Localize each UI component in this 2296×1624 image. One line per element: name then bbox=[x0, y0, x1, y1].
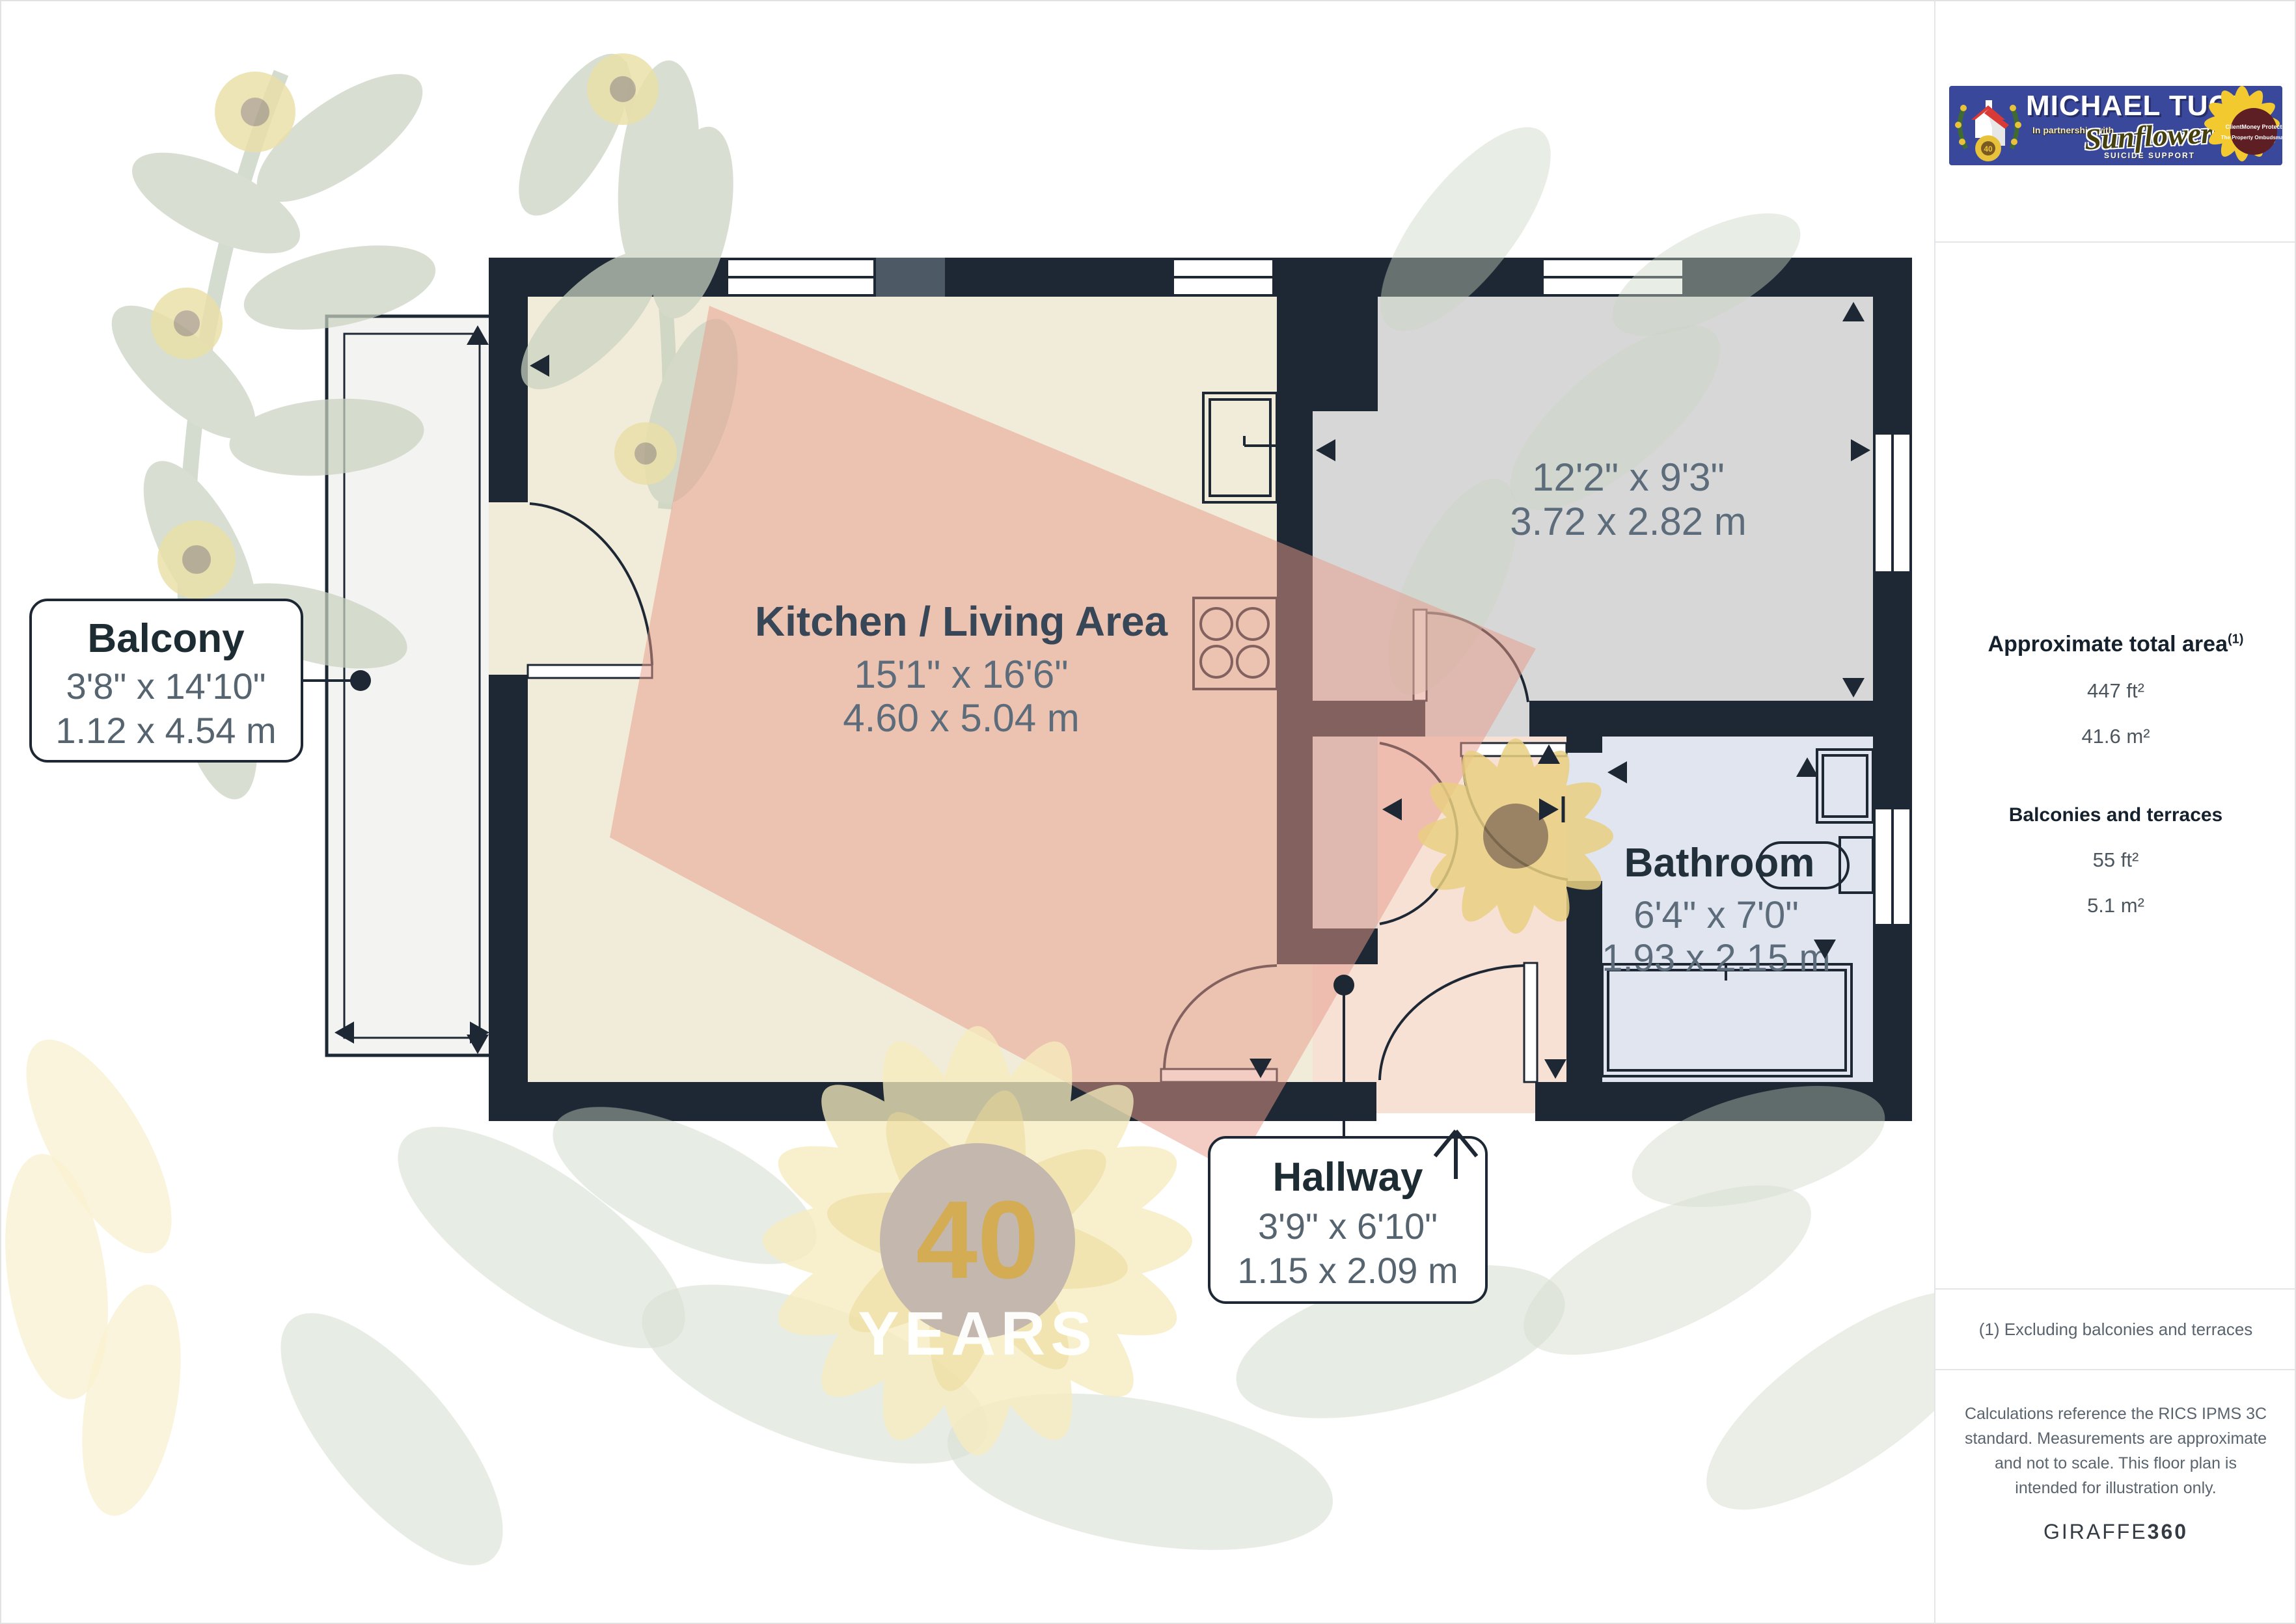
bathroom-dims-metric: 1.93 x 2.15 m bbox=[1602, 937, 1830, 979]
kitchen-dims-metric: 4.60 x 5.04 m bbox=[843, 696, 1080, 740]
bathroom-label: Bathroom bbox=[1624, 841, 1815, 886]
total-area-title: Approximate total area(1) bbox=[1935, 632, 2296, 657]
bedroom-dims-imperial: 12'2" x 9'3" bbox=[1532, 455, 1725, 499]
hallway-dims-metric: 1.15 x 2.09 m bbox=[1237, 1250, 1458, 1291]
agency-logo: 40 MICHAEL TUCK In partnership with Sunf… bbox=[1949, 86, 2282, 165]
watermark-years: YEARS bbox=[858, 1299, 1097, 1368]
balconies-m: 5.1 m² bbox=[1935, 894, 2296, 917]
footnote-marker: (1) bbox=[2228, 632, 2243, 647]
balcony-dims-imperial: 3'8" x 14'10" bbox=[66, 666, 266, 707]
balcony-label: Balcony bbox=[87, 616, 245, 661]
property-ombudsman-badge: The Property Ombudsman bbox=[2221, 135, 2282, 141]
balcony-leader-dot bbox=[350, 670, 371, 691]
logo-section: 40 MICHAEL TUCK In partnership with Sunf… bbox=[1935, 1, 2296, 243]
footnote-text: (1) Excluding balconies and terraces bbox=[1979, 1319, 2253, 1340]
client-money-protect-badge: ClientMoney Protect bbox=[2225, 124, 2282, 130]
area-summary-section: Approximate total area(1) 447 ft² 41.6 m… bbox=[1935, 243, 2296, 1290]
footnote-section: (1) Excluding balconies and terraces bbox=[1935, 1290, 2296, 1370]
kitchen-window-1 bbox=[727, 259, 875, 295]
charity-subtitle: SUICIDE SUPPORT bbox=[2104, 151, 2195, 160]
balconies-title: Balconies and terraces bbox=[1935, 804, 2296, 826]
hallway-dims-imperial: 3'9" x 6'10" bbox=[1258, 1206, 1438, 1247]
floorplan-page: 40 YEARS Kitchen / Living Area 15'1" x 1… bbox=[0, 0, 2296, 1624]
sidebar: 40 MICHAEL TUCK In partnership with Sunf… bbox=[1934, 1, 2296, 1623]
total-area-ft: 447 ft² bbox=[1935, 679, 2296, 703]
logo-40-badge: 40 bbox=[1984, 144, 1993, 154]
disclaimer-text: Calculations reference the RICS IPMS 3C … bbox=[1963, 1401, 2269, 1500]
balconies-ft: 55 ft² bbox=[1935, 848, 2296, 872]
total-area-m: 41.6 m² bbox=[1935, 725, 2296, 748]
floor-plan-area: 40 YEARS Kitchen / Living Area 15'1" x 1… bbox=[1, 1, 1934, 1624]
logo-house-icon: 40 bbox=[1952, 88, 2025, 163]
bedroom-dims-metric: 3.72 x 2.82 m bbox=[1510, 500, 1747, 543]
hallway-leader-dot bbox=[1333, 975, 1354, 995]
balcony-dims-metric: 1.12 x 4.54 m bbox=[55, 710, 276, 751]
hallway-label: Hallway bbox=[1273, 1155, 1423, 1200]
floor-plan: 40 YEARS Kitchen / Living Area 15'1" x 1… bbox=[1, 1, 1934, 1624]
bathroom-dims-imperial: 6'4" x 7'0" bbox=[1633, 894, 1799, 936]
kitchen-window-2 bbox=[1173, 259, 1274, 295]
logo-sunflower-icon: ClientMoney Protect The Property Ombudsm… bbox=[2185, 86, 2282, 165]
kitchen-label: Kitchen / Living Area bbox=[755, 598, 1168, 645]
giraffe360-logo: GIRAFFE360 bbox=[1935, 1520, 2296, 1544]
disclaimer-section: Calculations reference the RICS IPMS 3C … bbox=[1935, 1370, 2296, 1544]
bathroom-window bbox=[1874, 808, 1911, 925]
kitchen-dims-imperial: 15'1" x 16'6" bbox=[854, 653, 1068, 696]
watermark-40: 40 bbox=[916, 1178, 1039, 1302]
bedroom-window-right bbox=[1874, 433, 1911, 573]
